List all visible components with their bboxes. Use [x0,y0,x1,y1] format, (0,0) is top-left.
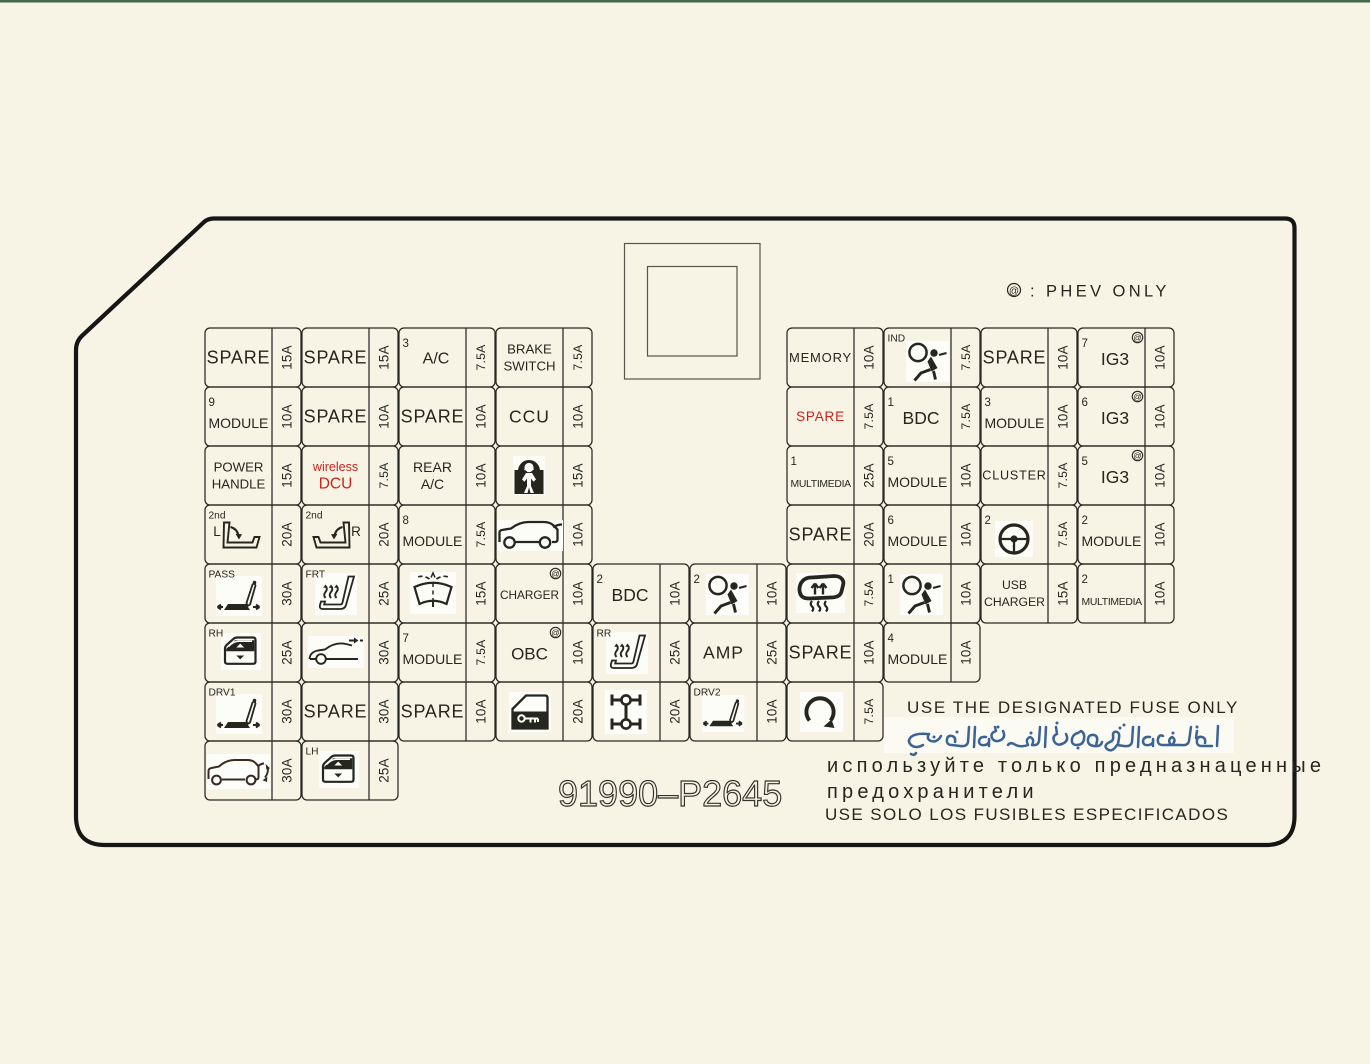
svg-text:3: 3 [403,338,409,350]
svg-text:MODULE: MODULE [888,533,948,549]
svg-text:20A: 20A [668,699,683,723]
svg-text:10A: 10A [571,640,586,664]
svg-text:USE SOLO LOS FUSIBLES ESPECIFI: USE SOLO LOS FUSIBLES ESPECIFICADOS [825,805,1229,824]
svg-text:R: R [351,524,361,539]
svg-text:7: 7 [1082,338,1088,350]
svg-text:DRV1: DRV1 [209,688,236,699]
svg-text:7.5A: 7.5A [862,580,876,607]
svg-text:MODULE: MODULE [403,651,463,667]
svg-text:10A: 10A [862,345,877,369]
svg-text:7.5A: 7.5A [959,403,973,430]
svg-text:15A: 15A [474,581,489,605]
svg-text:10A: 10A [474,463,489,487]
svg-text:SPARE: SPARE [304,702,368,722]
svg-text:10A: 10A [959,463,974,487]
svg-text:2: 2 [597,574,603,586]
svg-text:10A: 10A [377,404,392,428]
svg-text:30A: 30A [280,758,295,782]
svg-text:25A: 25A [765,640,780,664]
svg-text:MODULE: MODULE [1082,533,1142,549]
svg-text:DRV2: DRV2 [694,688,721,699]
svg-text:: PHEV ONLY: : PHEV ONLY [1030,283,1170,301]
svg-text:30A: 30A [280,581,295,605]
svg-text:CCU: CCU [509,407,550,427]
svg-text:15A: 15A [1056,581,1071,605]
svg-text:7.5A: 7.5A [862,403,876,430]
svg-text:RH: RH [209,629,224,640]
svg-text:5: 5 [888,456,894,468]
svg-text:SPARE: SPARE [796,409,845,424]
svg-text:6: 6 [888,515,894,527]
svg-text:7.5A: 7.5A [377,462,391,489]
svg-text:@: @ [1133,392,1142,402]
svg-text:MODULE: MODULE [985,415,1045,431]
svg-text:10A: 10A [571,522,586,546]
svg-text:USB: USB [1002,578,1027,592]
svg-text:7.5A: 7.5A [1056,462,1070,489]
svg-text:20A: 20A [571,699,586,723]
svg-text:FRT: FRT [306,570,326,581]
svg-text:20A: 20A [862,522,877,546]
svg-text:7.5A: 7.5A [1056,521,1070,548]
svg-text:10A: 10A [765,699,780,723]
svg-text:@: @ [1009,286,1019,297]
svg-text:10A: 10A [571,581,586,605]
svg-text:7.5A: 7.5A [959,344,973,371]
svg-text:A/C: A/C [421,476,444,492]
svg-text:PASS: PASS [209,570,236,581]
svg-text:10A: 10A [1056,345,1071,369]
svg-text:A/C: A/C [423,351,450,368]
svg-text:4: 4 [888,633,895,645]
svg-text:15A: 15A [280,463,295,487]
svg-text:SPARE: SPARE [304,348,368,368]
svg-text:SPARE: SPARE [983,348,1047,368]
svg-text:20A: 20A [377,522,392,546]
svg-text:7.5A: 7.5A [474,344,488,371]
svg-text:30A: 30A [280,699,295,723]
svg-text:15A: 15A [571,463,586,487]
svg-text:10A: 10A [959,581,974,605]
svg-text:6: 6 [1082,397,1088,409]
svg-text:30A: 30A [377,640,392,664]
svg-text:7.5A: 7.5A [474,521,488,548]
svg-text:2: 2 [1082,574,1088,586]
svg-text:IG3: IG3 [1101,408,1129,428]
svg-text:10A: 10A [474,699,489,723]
svg-text:10A: 10A [474,404,489,428]
svg-text:20A: 20A [280,522,295,546]
svg-text:15A: 15A [377,345,392,369]
svg-text:MODULE: MODULE [888,474,948,490]
svg-text:7.5A: 7.5A [474,639,488,666]
svg-text:25A: 25A [862,463,877,487]
svg-text:3: 3 [985,397,991,409]
svg-text:10A: 10A [280,404,295,428]
svg-text:SPARE: SPARE [789,643,853,663]
svg-text:SPARE: SPARE [304,407,368,427]
svg-text:HANDLE: HANDLE [212,477,266,492]
svg-text:OBC: OBC [511,645,548,664]
svg-text:CHARGER: CHARGER [984,595,1045,609]
svg-text:USE THE DESIGNATED FUSE ONLY: USE THE DESIGNATED FUSE ONLY [907,698,1239,717]
svg-text:предохранители: предохранители [827,781,1038,803]
svg-text:10A: 10A [1153,463,1168,487]
svg-text:IG3: IG3 [1101,467,1129,487]
svg-text:MODULE: MODULE [403,533,463,549]
svg-text:8: 8 [403,515,409,527]
svg-text:MULTIMEDIA: MULTIMEDIA [791,479,852,490]
svg-text:30A: 30A [377,699,392,723]
svg-text:10A: 10A [1153,404,1168,428]
svg-text:10A: 10A [668,581,683,605]
svg-text:@: @ [1133,451,1142,461]
svg-text:10A: 10A [1153,581,1168,605]
svg-text:7.5A: 7.5A [571,344,585,371]
svg-text:CLUSTER: CLUSTER [982,469,1046,483]
svg-text:10A: 10A [571,404,586,428]
svg-text:1: 1 [888,397,894,409]
svg-text:7: 7 [403,633,409,645]
svg-text:MODULE: MODULE [209,415,269,431]
svg-text:LH: LH [306,747,319,758]
svg-text:91990–P2645: 91990–P2645 [558,773,782,814]
svg-text:10A: 10A [1153,522,1168,546]
svg-text:CHARGER: CHARGER [500,588,559,602]
svg-text:10A: 10A [959,640,974,664]
svg-text:@: @ [551,569,560,579]
svg-text:BDC: BDC [612,585,649,605]
svg-text:25A: 25A [377,758,392,782]
svg-text:5: 5 [1082,456,1088,468]
svg-text:10A: 10A [959,522,974,546]
svg-text:@: @ [551,628,560,638]
svg-text:DCU: DCU [319,476,353,493]
svg-text:1: 1 [888,574,894,586]
svg-text:25A: 25A [668,640,683,664]
svg-text:15A: 15A [280,345,295,369]
svg-text:используйте только предназнаце: используйте только предназнаценные [827,755,1325,777]
svg-text:2nd: 2nd [209,511,226,522]
svg-text:9: 9 [209,397,215,409]
svg-text:2: 2 [985,515,991,527]
svg-text:2: 2 [694,574,700,586]
svg-text:REAR: REAR [413,459,452,475]
svg-text:MEMORY: MEMORY [789,350,852,365]
svg-text:BDC: BDC [903,408,940,428]
svg-text:AMP: AMP [703,643,744,663]
svg-text:25A: 25A [377,581,392,605]
svg-text:IG3: IG3 [1101,349,1129,369]
svg-text:25A: 25A [280,640,295,664]
svg-text:MODULE: MODULE [888,651,948,667]
svg-text:SPARE: SPARE [207,348,271,368]
svg-text:IND: IND [888,334,906,345]
svg-text:10A: 10A [862,640,877,664]
svg-text:2: 2 [1082,515,1088,527]
svg-text:2nd: 2nd [306,511,323,522]
svg-text:RR: RR [597,629,612,640]
svg-text:SPARE: SPARE [789,525,853,545]
svg-text:MULTIMEDIA: MULTIMEDIA [1082,597,1143,608]
svg-text:SPARE: SPARE [401,702,465,722]
svg-text:7.5A: 7.5A [862,698,876,725]
svg-text:10A: 10A [1153,345,1168,369]
svg-text:SPARE: SPARE [401,407,465,427]
svg-text:POWER: POWER [214,460,264,475]
svg-text:wireless: wireless [312,460,358,474]
svg-text:1: 1 [791,456,797,468]
svg-text:@: @ [1133,333,1142,343]
svg-text:BRAKE: BRAKE [507,342,552,357]
svg-text:10A: 10A [1056,404,1071,428]
svg-text:L: L [213,524,221,539]
svg-text:SWITCH: SWITCH [503,359,555,374]
svg-text:10A: 10A [765,581,780,605]
